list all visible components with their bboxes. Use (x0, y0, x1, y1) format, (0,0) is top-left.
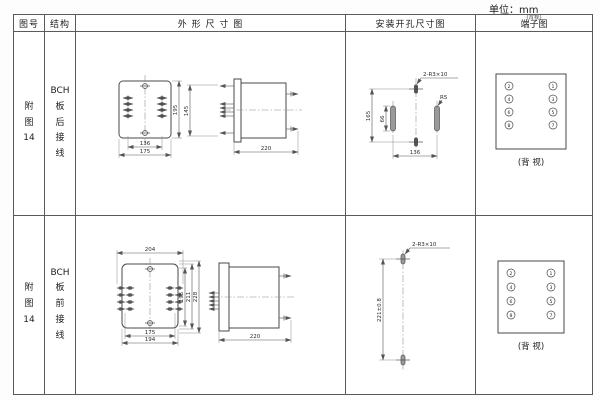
row1-side-view: 145 220 (184, 79, 302, 155)
dim-label: 175 (145, 330, 156, 336)
dim-label: 220 (261, 146, 272, 152)
header-terminal: (背视) 端子图 (476, 15, 593, 32)
row2-mounting-drawing: 2-R3×10 221±0.8 (346, 216, 475, 394)
row2-mounting-cell: 2-R3×10 221±0.8 (346, 216, 476, 395)
terminal-number: 6 (508, 110, 511, 116)
terminal-number: 1 (552, 84, 555, 90)
terminal-number: 6 (510, 299, 513, 305)
drawing-table: 图号 结构 外 形 尺 寸 图 安装开孔尺寸图 (背视) 端子图 附 图 14 … (13, 14, 593, 395)
row1-terminal-cell: 2 4 6 8 1 3 5 7 (背 视) (476, 32, 593, 216)
header-structure: 结构 (45, 15, 76, 32)
dim-label: 204 (145, 247, 156, 253)
rear-view-caption: (背 视) (518, 341, 544, 352)
terminal-number: 4 (508, 97, 511, 103)
row1-side-studs (286, 92, 298, 132)
dim-label: 221±0.8 (377, 298, 383, 322)
terminal-number: 4 (510, 285, 513, 291)
row2-terminals-right: 1 3 5 7 (547, 269, 555, 319)
rear-view-caption: (背 视) (518, 157, 544, 168)
dim-label: 66 (380, 115, 386, 122)
terminal-number: 7 (550, 313, 553, 319)
dim-label: 211 (186, 292, 192, 303)
row2-fig-no: 附 图 14 (14, 216, 45, 395)
terminal-number: 5 (550, 299, 553, 305)
terminal-number: 2 (508, 84, 511, 90)
terminal-number: 8 (510, 313, 513, 319)
row1-side-pins (220, 86, 234, 133)
terminal-number: 2 (510, 271, 513, 277)
dim-label: 228 (193, 291, 199, 302)
terminal-number: 3 (550, 285, 553, 291)
row2-terminal-cell: 2 4 6 8 1 3 5 7 (背 视) (476, 216, 593, 395)
dim-label: 195 (179, 291, 185, 302)
dim-label: 165 (366, 110, 372, 121)
terminal-number: 5 (552, 110, 555, 116)
row1-terminal-drawing: 2 4 6 8 1 3 5 7 (背 视) (476, 32, 592, 215)
dim-label: 220 (250, 334, 261, 340)
row2-outline-drawing: 204 175 194 195 211 228 (76, 216, 345, 394)
dim-label: 175 (140, 149, 151, 155)
row1-outline-cell: 136 175 195 (76, 32, 346, 216)
hole-label: 2-R3×10 (412, 242, 437, 248)
header-fig-no: 图号 (14, 15, 45, 32)
row1-front-view: 136 175 195 (119, 75, 182, 158)
row2-structure: BCH 板 前 接 线 (45, 216, 76, 395)
dim-label: 194 (145, 337, 156, 343)
row2-terminal-drawing: 2 4 6 8 1 3 5 7 (背 视) (476, 216, 592, 394)
row2-outline-cell: 204 175 194 195 211 228 (76, 216, 346, 395)
dim-label: 136 (410, 150, 421, 156)
slot-radius-label: R5 (440, 95, 448, 101)
terminal-number: 1 (550, 271, 553, 277)
row2-terminals-left: 2 4 6 8 (507, 269, 515, 319)
dim-label: 136 (140, 141, 151, 147)
row2-side-pins (209, 293, 219, 309)
terminal-number: 7 (552, 123, 555, 129)
row2-side-view: 220 (209, 263, 296, 343)
hole-label: 2-R3×10 (423, 72, 448, 78)
row1-fig-no: 附 图 14 (14, 32, 45, 216)
row1-mounting-drawing: R5 2-R3×10 165 66 136 (346, 32, 475, 215)
row1-outline-drawing: 136 175 195 (76, 32, 345, 215)
row1-structure: BCH 板 后 接 线 (45, 32, 76, 216)
terminal-number: 3 (552, 97, 555, 103)
row2-front-view: 204 175 194 195 211 228 (117, 247, 201, 346)
header-mounting: 安装开孔尺寸图 (346, 15, 476, 32)
row1-terminals-right: 1 3 5 7 (549, 82, 557, 129)
header-outline: 外 形 尺 寸 图 (76, 15, 346, 32)
dim-label: 195 (173, 104, 179, 115)
header-terminal-label: 端子图 (520, 21, 547, 30)
row1-mounting-cell: R5 2-R3×10 165 66 136 (346, 32, 476, 216)
dim-label: 145 (184, 105, 190, 116)
row1-mounting-slots (391, 101, 440, 136)
terminal-number: 8 (508, 123, 511, 129)
row1-terminals-left: 2 4 6 8 (505, 82, 513, 129)
